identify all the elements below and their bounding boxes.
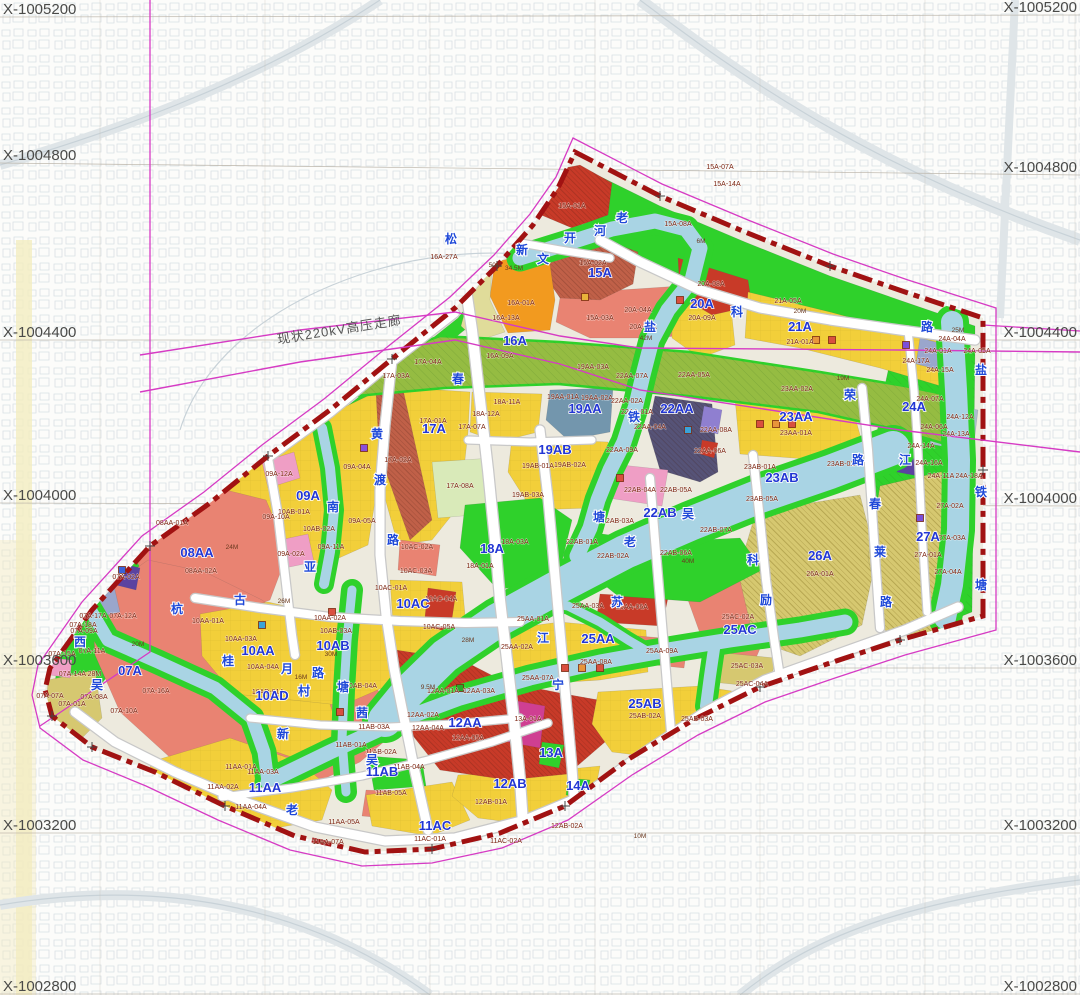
parcel-label-25AC-03A: 25AC-03A xyxy=(731,663,764,670)
parcel-label-24A-15A: 24A-15A xyxy=(926,367,954,374)
parcel-label-07A-11A: 07A-11A xyxy=(79,648,106,655)
road-name-char: 科 xyxy=(747,552,759,567)
road-name-char: 茜 xyxy=(356,705,368,720)
parcel-label-07A-17A: 07A-17A xyxy=(79,613,107,620)
parcel-label-07A-07A: 07A-07A xyxy=(36,693,64,700)
district-label-23AB: 23AB xyxy=(765,470,798,485)
facility-icon xyxy=(677,297,684,304)
coord-label-right: X-1005200 xyxy=(1004,0,1077,16)
parcel-label-21A-05A: 21A-05A xyxy=(774,298,802,305)
road-name-char: 松 xyxy=(445,231,457,246)
parcel-label-12AA-05A: 12AA-05A xyxy=(452,735,484,742)
road-name-char: 吴 xyxy=(91,678,104,692)
road-width-label: 24M xyxy=(226,544,239,551)
road-name-char: 村 xyxy=(298,683,310,698)
parcel-label-15A-14A: 15A-14A xyxy=(713,181,741,188)
parcel-label-10AA-01A: 10AA-01A xyxy=(192,618,224,625)
map-canvas: 现状220kV高压走廊15A-01A15A-02A15A-03A15A-07A1… xyxy=(0,0,1080,995)
road-name-char: 铁 xyxy=(628,409,640,424)
parcel-label-17A-02A: 17A-02A xyxy=(384,457,412,464)
road-name-char: 路 xyxy=(921,319,934,334)
parcel-label-11AA-05A: 11AA-05A xyxy=(328,819,360,826)
road-name-char: 渡 xyxy=(374,472,387,487)
coord-label-left: X-1005200 xyxy=(3,1,76,18)
parcel-label-25AC-02A: 25AC-02A xyxy=(722,614,755,621)
parcel-label-10AA-03A: 10AA-03A xyxy=(225,636,257,643)
facility-icon xyxy=(617,475,624,482)
parcel-label-16A-01A: 16A-01A xyxy=(507,300,535,307)
parcel-label-24A-18A: 24A-18A xyxy=(955,473,983,480)
district-label-09A: 09A xyxy=(296,488,320,503)
district-label-14A: 14A xyxy=(566,778,590,793)
road-name-char: 南 xyxy=(327,499,339,514)
parcel-label-10AC-05A: 10AC-05A xyxy=(423,624,456,631)
parcel-label-19AB-01A: 19AB-01A xyxy=(522,463,554,470)
parcel-label-12AA-03A: 12AA-03A xyxy=(463,688,495,695)
parcel-label-11AA-02A: 11AA-02A xyxy=(207,784,239,791)
parcel-label-22AA-02A: 22AA-02A xyxy=(611,398,643,405)
coord-label-right: X-1004000 xyxy=(1004,490,1077,507)
parcel-label-18A-12A: 18A-12A xyxy=(472,411,500,418)
parcel-label-09A-02A: 09A-02A xyxy=(277,551,305,558)
coord-label-left: X-1003600 xyxy=(3,652,76,669)
road-width-label: 9.5M xyxy=(421,684,435,691)
road-name-char: 吴 xyxy=(682,507,695,521)
district-label-12AA: 12AA xyxy=(448,715,482,730)
district-label-10AA: 10AA xyxy=(241,643,275,658)
road-name-char: 苏 xyxy=(611,594,623,609)
parcel-label-07A-01A: 07A-01A xyxy=(58,701,86,708)
district-label-21A: 21A xyxy=(788,319,812,334)
parcel-label-22AB-06A: 22AB-06A xyxy=(660,550,692,557)
district-label-22AB: 22AB xyxy=(643,505,676,520)
district-label-25AA: 25AA xyxy=(581,631,615,646)
parcel-label-25AA-02A: 25AA-02A xyxy=(501,644,533,651)
parcel-label-08AA-02A: 08AA-02A xyxy=(185,568,217,575)
parcel-label-19AA-01A: 19AA-01A xyxy=(547,394,579,401)
parcel-label-17A-08A: 17A-08A xyxy=(446,483,474,490)
road-name-char: 河 xyxy=(593,223,606,238)
parcel-label-10AC-02A: 10AC-02A xyxy=(401,544,434,551)
parcel-label-11AB-01A: 11AB-01A xyxy=(335,742,367,749)
road-name-char: 路 xyxy=(880,594,893,609)
facility-icon xyxy=(119,567,126,574)
road-name-char: 春 xyxy=(451,371,465,386)
district-label-10AD: 10AD xyxy=(255,688,288,703)
parcel-label-18A-03A: 18A-03A xyxy=(501,539,529,546)
road-name-char: 科 xyxy=(731,304,743,319)
parcel-label-27A-03A: 27A-03A xyxy=(938,535,966,542)
road-name-char: 塘 xyxy=(593,509,605,524)
district-label-10AB: 10AB xyxy=(316,638,349,653)
parcel-label-11AC-01A: 11AC-01A xyxy=(414,836,446,843)
parcel-label-09A-11A: 09A-11A xyxy=(318,544,345,551)
parcel-label-23AA-01A: 23AA-01A xyxy=(780,430,812,437)
parcel-label-25AA-01A: 25AA-01A xyxy=(517,616,549,623)
road-name-char: 宁 xyxy=(552,677,564,692)
facility-icon xyxy=(337,709,344,716)
parcel-label-07A-08A: 07A-08A xyxy=(80,694,108,701)
district-label-12AB: 12AB xyxy=(493,776,526,791)
coord-label-right: X-1003200 xyxy=(1004,817,1077,834)
road-width-label: 50M xyxy=(489,262,502,269)
road-name-char: 路 xyxy=(387,532,400,547)
road-name-char: 老 xyxy=(286,802,298,817)
parcel-label-07A-14A 28M: 07A-14A 28M xyxy=(59,671,102,678)
coord-label-right: X-1004800 xyxy=(1004,159,1077,176)
parcel-label-10AB-03A: 10AB-03A xyxy=(320,628,352,635)
parcel-label-25AB-02A: 25AB-02A xyxy=(629,713,661,720)
parcel-label-16A-09A: 16A-09A xyxy=(486,353,514,360)
district-label-19AB: 19AB xyxy=(538,442,571,457)
coord-label-right: X-1003600 xyxy=(1004,652,1077,669)
road-width-label: 25M xyxy=(952,327,965,334)
road-name-char: 新 xyxy=(277,726,289,741)
coord-label-left: X-1004000 xyxy=(3,487,76,504)
road-name-char: 新 xyxy=(516,242,528,257)
coord-label-right: X-1002800 xyxy=(1004,978,1077,995)
parcel-label-11AA-03A: 11AA-03A xyxy=(247,769,279,776)
parcel-label-10AB-02A: 10AB-02A xyxy=(303,526,335,533)
facility-icon xyxy=(917,515,924,522)
parcel-label-24A-05A: 24A-05A xyxy=(963,348,991,355)
parcel-label-12AA-02A: 12AA-02A xyxy=(407,712,439,719)
parcel-label-19AA-03A: 19AA-03A xyxy=(577,364,609,371)
parcel-label-11AA-07A: 11AA-07A xyxy=(312,839,344,846)
facility-icon xyxy=(685,427,692,434)
parcel-label-18A-01A: 18A-01A xyxy=(466,563,494,570)
district-label-10AC: 10AC xyxy=(396,596,430,611)
parcel-label-27A-01A: 27A-01A xyxy=(914,552,942,559)
coord-label-left: X-1004800 xyxy=(3,147,76,164)
road-name-char: 黄 xyxy=(371,426,383,441)
parcel-label-15A-08A: 15A-08A xyxy=(664,221,692,228)
parcel-label-24A-14A: 24A-14A xyxy=(907,443,935,450)
parcel-label-15A-07A: 15A-07A xyxy=(706,164,734,171)
parcel-label-24A-04A: 24A-04A xyxy=(938,336,966,343)
road-name-char: 江 xyxy=(899,452,911,467)
parcel-label-19AB-02A: 19AB-02A xyxy=(554,462,586,469)
road-name-char: 荣 xyxy=(843,387,857,402)
district-label-20A: 20A xyxy=(690,296,714,311)
parcel-label-11AB-05A: 11AB-05A xyxy=(375,790,407,797)
facility-icon xyxy=(361,445,368,452)
parcel-label-10AC-04A: 10AC-04A xyxy=(425,596,458,603)
parcel-label-08AA-01A: 08AA-01A xyxy=(156,520,188,527)
parcel-label-25AA-07A: 25AA-07A xyxy=(522,675,554,682)
district-label-11AA: 11AA xyxy=(249,780,282,795)
parcel-label-22AA-04A: 22AA-04A xyxy=(634,424,666,431)
road-name-char: 文 xyxy=(537,251,550,266)
road-name-char: 路 xyxy=(852,452,865,467)
road-name-char: 塘 xyxy=(975,577,987,592)
parcel-label-10AC-03A: 10AC-03A xyxy=(400,568,433,575)
road-name-char: 盐 xyxy=(975,362,987,377)
road-name-char: 古 xyxy=(234,592,246,607)
parcel-label-12AA-04A: 12AA-04A xyxy=(412,725,444,732)
parcel-label-11AC-02A: 11AC-02A xyxy=(490,838,522,845)
district-label-07A: 07A xyxy=(118,663,142,678)
road-name-char: 开 xyxy=(564,231,576,245)
district-label-15A: 15A xyxy=(588,265,612,280)
parcel-label-12AB-01A: 12AB-01A xyxy=(475,799,507,806)
facility-icon xyxy=(562,665,569,672)
district-label-23AA: 23AA xyxy=(779,409,813,424)
district-label-27A: 27A xyxy=(916,529,940,544)
parcel-label-26A-01A: 26A-01A xyxy=(806,571,834,578)
parcel-label-07A-18A: 07A-18A xyxy=(69,622,97,629)
parcel-label-22AB-07A: 22AB-07A xyxy=(700,527,732,534)
parcel-label-21A-01A: 21A-01A xyxy=(786,339,814,346)
parcel-label-24A-17A: 24A-17A xyxy=(902,358,930,365)
facility-icon xyxy=(259,622,266,629)
parcel-label-12AB-02A: 12AB-02A xyxy=(551,823,583,830)
road-width-label: 34.5M xyxy=(505,265,523,272)
parcel-label-22AA-06A: 22AA-06A xyxy=(694,448,726,455)
road-name-char: 月 xyxy=(280,662,293,676)
parcel-label-10AB-04A: 10AB-04A xyxy=(345,683,377,690)
road-name-char: 盐 xyxy=(644,319,656,334)
road-name-char: 西 xyxy=(74,635,86,649)
road-name-char: 莱 xyxy=(874,544,886,559)
district-label-13A: 13A xyxy=(539,745,563,760)
road-width-label: 6M xyxy=(696,238,705,245)
road-width-label: 19M xyxy=(837,375,850,382)
road-name-char: 老 xyxy=(624,534,636,549)
facility-icon xyxy=(829,337,836,344)
parcel-label-13A-01A: 13A-01A xyxy=(514,716,542,723)
road-name-char: 亚 xyxy=(304,560,316,574)
district-label-18A: 18A xyxy=(480,541,504,556)
road-width-label: 20M xyxy=(794,308,807,315)
parcel-label-25AA-03A: 25AA-03A xyxy=(572,603,604,610)
parcel-label-07A-10A: 07A-10A xyxy=(110,708,138,715)
parcel-label-15A-01A: 15A-01A xyxy=(558,203,586,210)
planning-map-screenshot: 现状220kV高压走廊15A-01A15A-02A15A-03A15A-07A1… xyxy=(0,0,1080,995)
road-name-char: 塘 xyxy=(337,679,349,694)
district-label-11AC: 11AC xyxy=(419,818,452,833)
parcel-label-22AA-09A: 22AA-09A xyxy=(606,447,638,454)
facility-icon xyxy=(903,342,910,349)
road-width-label: 26M xyxy=(278,598,291,605)
facility-icon xyxy=(582,294,589,301)
parcel-label-22AA-07A: 22AA-07A xyxy=(616,373,648,380)
parcel-label-11AA-04A: 11AA-04A xyxy=(235,804,267,811)
parcel-label-22AB-01A: 22AB-01A xyxy=(566,539,598,546)
parcel-label-24A-16A: 24A-16A xyxy=(915,460,943,467)
road-width-label: 40M xyxy=(682,558,695,565)
parcel-label-27A-04A: 27A-04A xyxy=(934,569,962,576)
parcel-label-22AB-02A: 22AB-02A xyxy=(597,553,629,560)
parcel-label-10AA-02A: 10AA-02A xyxy=(314,615,346,622)
parcel-label-22AB-05A: 22AB-05A xyxy=(660,487,692,494)
road-width-label: 28M xyxy=(462,637,475,644)
coord-label-left: X-1003200 xyxy=(3,817,76,834)
parcel-label-20A-09A: 20A-09A xyxy=(688,315,716,322)
parcel-label-24A-01A: 24A-01A xyxy=(924,348,952,355)
parcel-label-07A-16A: 07A-16A xyxy=(142,688,170,695)
road-name-char: 吴 xyxy=(366,753,379,767)
parcel-label-25AA-08A: 25AA-08A xyxy=(580,659,612,666)
district-label-22AA: 22AA xyxy=(660,401,694,416)
district-label-16A: 16A xyxy=(503,333,527,348)
road-name-char: 杭 xyxy=(171,601,183,616)
parcel-label-19AB-03A: 19AB-03A xyxy=(512,492,544,499)
road-width-label: 16M xyxy=(295,674,308,681)
road-width-label: 42M xyxy=(640,335,653,342)
parcel-label-15A-03A: 15A-03A xyxy=(586,315,614,322)
coord-label-left: X-1004400 xyxy=(3,324,76,341)
parcel-label-20A-04A: 20A-04A xyxy=(624,307,652,314)
parcel-label-24A-11A: 24A-11A xyxy=(928,473,955,480)
parcel-label-09A-05A: 09A-05A xyxy=(348,518,376,525)
parcel-label-24A-13A: 24A-13A xyxy=(942,431,970,438)
road-name-char: 江 xyxy=(537,630,549,645)
parcel-label-22AB-04A: 22AB-04A xyxy=(624,487,656,494)
district-label-19AA: 19AA xyxy=(568,401,602,416)
road-name-char: 桂 xyxy=(221,653,234,668)
parcel-label-22AB-03A: 22AB-03A xyxy=(602,518,634,525)
parcel-label-10AB-01A: 10AB-01A xyxy=(278,509,310,516)
coord-label-left: X-1002800 xyxy=(3,978,76,995)
parcel-label-22AA-05A: 22AA-05A xyxy=(678,372,710,379)
parcel-label-27A-02A: 27A-02A xyxy=(936,503,964,510)
road-name-char: 路 xyxy=(312,665,325,680)
district-label-25AB: 25AB xyxy=(628,696,661,711)
edge-tint-strip-2 xyxy=(0,540,36,995)
parcel-label-07A-12A: 07A-12A xyxy=(109,613,137,620)
parcel-label-22AA-08A: 22AA-08A xyxy=(700,427,732,434)
parcel-label-20A-08A: 20A-08A xyxy=(697,281,725,288)
district-label-08AA: 08AA xyxy=(180,545,214,560)
parcel-label-10AA-04A: 10AA-04A xyxy=(247,664,279,671)
road-14 xyxy=(468,440,592,442)
road-width-label: 10M xyxy=(634,833,647,840)
parcel-label-11AB-03A: 11AB-03A xyxy=(358,724,390,731)
district-label-26A: 26A xyxy=(808,548,832,563)
parcel-label-07A-02A: 07A-02A xyxy=(112,574,140,581)
coord-label-right: X-1004400 xyxy=(1004,324,1077,341)
parcel-label-23AA-02A: 23AA-02A xyxy=(781,386,813,393)
parcel-label-25AA-09A: 25AA-09A xyxy=(646,648,678,655)
road-name-char: 铁 xyxy=(975,484,987,499)
parcel-label-09A-12A: 09A-12A xyxy=(265,471,293,478)
road-name-char: 春 xyxy=(868,496,882,511)
parcel-label-23AB-05A: 23AB-05A xyxy=(746,496,778,503)
parcel-label-16A-27A: 16A-27A xyxy=(430,254,458,261)
parcel-label-18A-11A: 18A-11A xyxy=(494,399,521,406)
parcel-label-25AC-04A: 25AC-04A xyxy=(736,681,769,688)
facility-icon xyxy=(757,421,764,428)
district-label-17A: 17A xyxy=(422,421,446,436)
road-name-char: 老 xyxy=(616,210,628,225)
road-width-label: 20M xyxy=(132,641,145,648)
district-label-25AC: 25AC xyxy=(723,622,757,637)
parcel-label-16A-13A: 16A-13A xyxy=(492,315,520,322)
parcel-label-17A-04A: 17A-04A xyxy=(414,359,442,366)
district-label-24A: 24A xyxy=(902,399,926,414)
parcel-label-09A-04A: 09A-04A xyxy=(343,464,371,471)
parcel-label-25AB-03A: 25AB-03A xyxy=(681,716,713,723)
parcel-label-24A-12A: 24A-12A xyxy=(946,414,974,421)
parcel-label-17A-07A: 17A-07A xyxy=(458,424,486,431)
parcel-label-07A-09A: 07A-09A xyxy=(70,628,98,635)
parcel-label-24A-06A: 24A-06A xyxy=(920,424,948,431)
parcel-label-17A-03A: 17A-03A xyxy=(382,373,410,380)
parcel-label-10AC-01A: 10AC-01A xyxy=(375,585,408,592)
road-name-char: 励 xyxy=(760,593,772,607)
